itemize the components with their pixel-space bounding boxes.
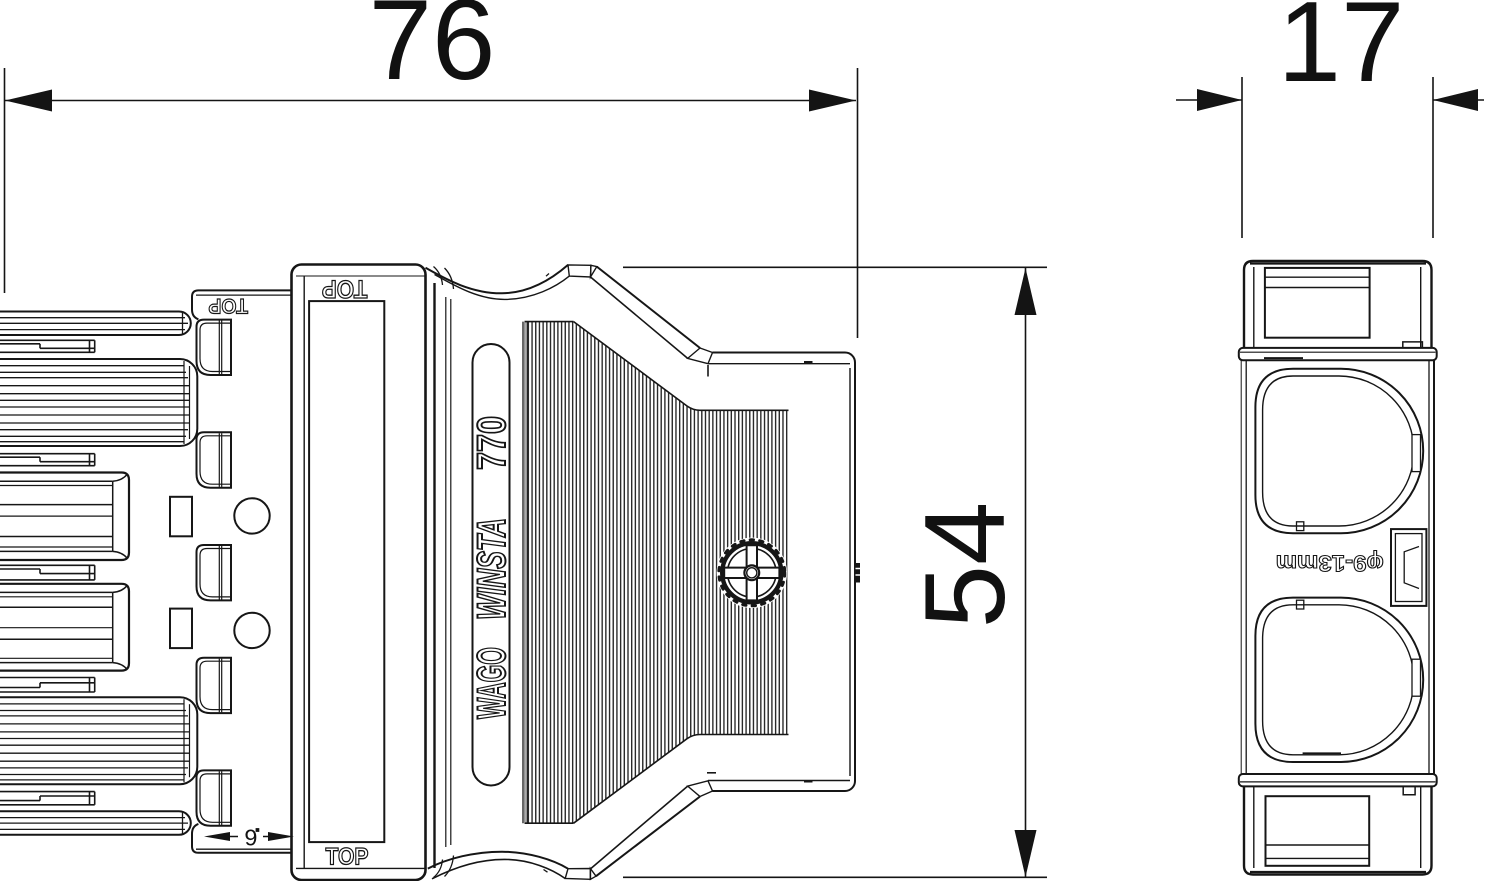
svg-text:76: 76 (369, 0, 496, 104)
svg-text:TOP: TOP (326, 844, 369, 871)
svg-text:54: 54 (902, 502, 1029, 629)
svg-text:17: 17 (1278, 0, 1405, 106)
svg-text:TOP: TOP (208, 294, 248, 318)
svg-text:770: 770 (470, 416, 514, 470)
svg-text:WAGO: WAGO (470, 647, 514, 719)
svg-text:φ9-13mm: φ9-13mm (1276, 551, 1384, 577)
svg-text:WINSTA: WINSTA (470, 518, 514, 620)
svg-text:6: 6 (244, 825, 257, 851)
svg-text:TOP: TOP (322, 274, 368, 302)
